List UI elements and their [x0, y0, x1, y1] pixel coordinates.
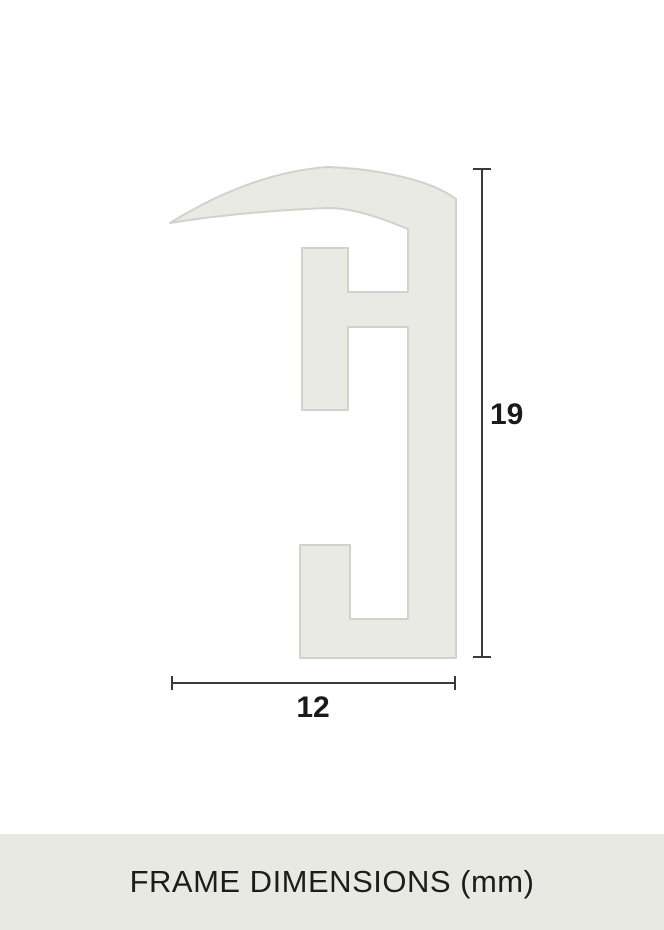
height-dimension-line — [473, 169, 491, 657]
footer-title: FRAME DIMENSIONS (mm) — [130, 864, 535, 900]
frame-profile-diagram-page: 19 12 FRAME DIMENSIONS (mm) — [0, 0, 664, 930]
width-dimension-label: 12 — [296, 691, 329, 724]
height-dimension-label: 19 — [490, 398, 523, 431]
profile-cross-section-svg: 19 12 — [0, 0, 664, 834]
footer-bar: FRAME DIMENSIONS (mm) — [0, 834, 664, 930]
width-dimension-line — [172, 676, 455, 690]
frame-profile-shape — [170, 167, 456, 658]
